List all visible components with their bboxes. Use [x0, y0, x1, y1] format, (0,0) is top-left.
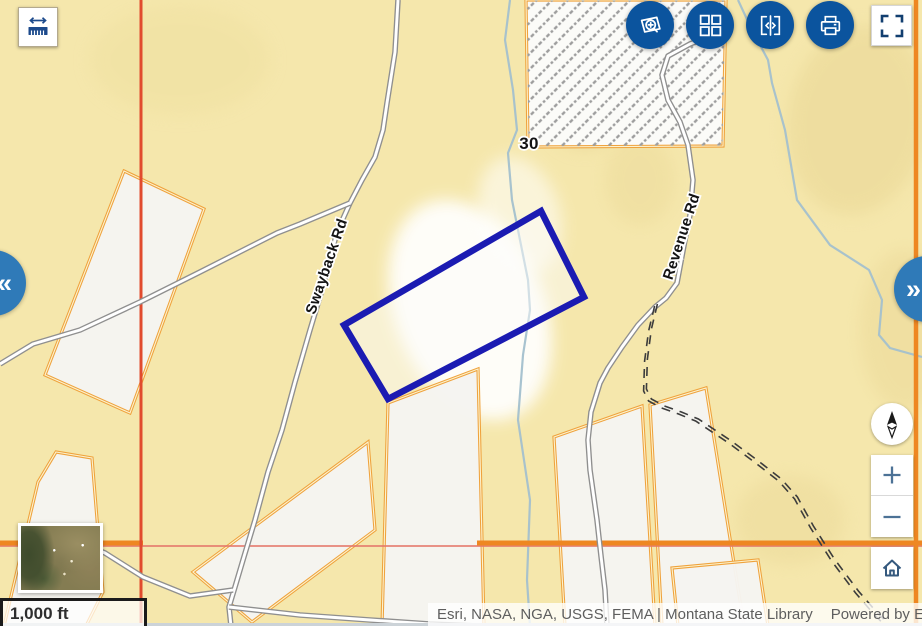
parcel[interactable] [382, 369, 484, 626]
compass-reset-north-button[interactable] [871, 403, 913, 445]
chevron-double-left-icon: « [0, 268, 12, 299]
measure-distance-button[interactable] [18, 7, 58, 47]
minus-icon [880, 505, 904, 529]
swipe-brackets-icon [757, 12, 784, 39]
map-canvas[interactable]: Swayback RdRevenue Rd30 [0, 0, 922, 626]
fullscreen-corners-icon [878, 12, 906, 40]
powered-by-esri: Powered by Esri [831, 606, 922, 623]
printer-icon [817, 12, 844, 39]
map-application-window: Swayback RdRevenue Rd30 [0, 0, 922, 626]
plus-icon [880, 463, 904, 487]
print-button[interactable] [806, 1, 854, 49]
basemap-overview-thumbnail[interactable] [18, 523, 103, 593]
home-icon [878, 554, 906, 582]
magnifier-parcel-icon [637, 12, 664, 39]
map-label: 30 [519, 134, 539, 153]
fullscreen-button[interactable] [871, 5, 912, 46]
home-extent-button[interactable] [871, 547, 913, 589]
zoom-controls [871, 455, 913, 537]
zoom-out-button[interactable] [871, 496, 913, 537]
zoom-in-button[interactable] [871, 455, 913, 496]
measure-distance-icon [26, 15, 50, 39]
chevron-double-right-icon: » [906, 274, 921, 305]
swipe-compare-button[interactable] [746, 1, 794, 49]
compass-needle-icon [879, 409, 905, 439]
scale-bar: 1,000 ft [0, 598, 147, 626]
attribution-sources: Esri, NASA, NGA, USGS, FEMA | Montana St… [437, 606, 813, 623]
scale-bar-label: 1,000 ft [10, 604, 69, 624]
attribution-bar: Esri, NASA, NGA, USGS, FEMA | Montana St… [428, 603, 922, 626]
grid-icon [697, 12, 724, 39]
zoom-to-feature-button[interactable] [626, 1, 674, 49]
basemap-grid-button[interactable] [686, 1, 734, 49]
